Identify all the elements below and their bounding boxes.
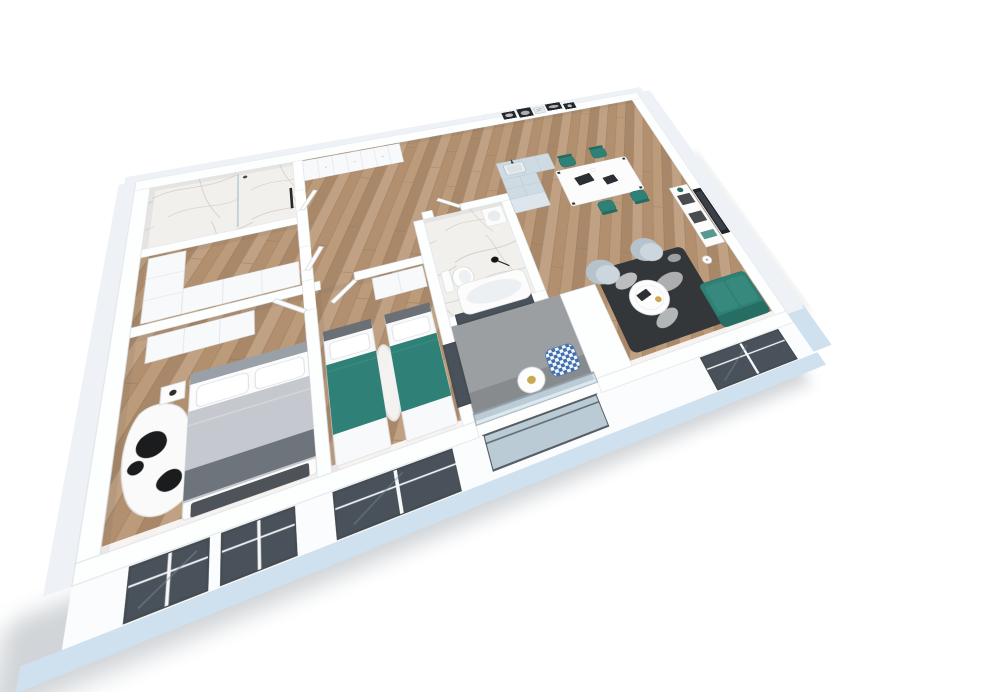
apartment-3d-plan [0, 81, 861, 692]
floorplan-canvas [0, 0, 989, 692]
